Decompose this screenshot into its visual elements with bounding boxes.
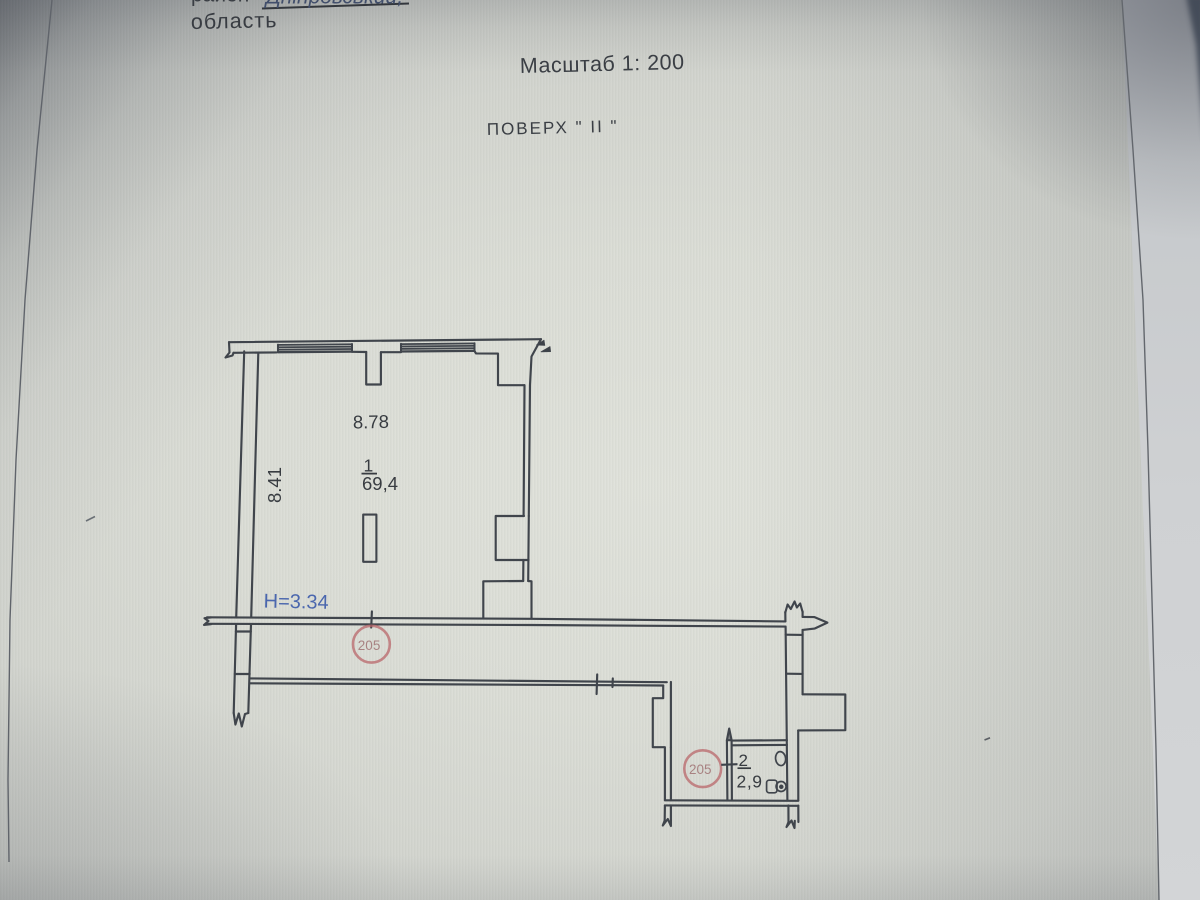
- svg-text:H=3.34: H=3.34: [263, 591, 329, 614]
- svg-text:69,4: 69,4: [362, 473, 398, 494]
- svg-text:Масштаб 1: 200: Масштаб 1: 200: [520, 50, 685, 78]
- svg-text:205: 205: [689, 762, 712, 777]
- svg-text:район: район: [191, 0, 249, 7]
- svg-text:ПОВЕРХ " ІІ ": ПОВЕРХ " ІІ ": [487, 117, 619, 139]
- svg-text:область: область: [191, 8, 278, 34]
- svg-text:2,9: 2,9: [737, 772, 763, 792]
- svg-text:205: 205: [358, 638, 381, 653]
- svg-text:2: 2: [739, 751, 748, 770]
- svg-text:Дніпровський,: Дніпровський,: [264, 0, 403, 9]
- svg-text:8.78: 8.78: [353, 411, 389, 433]
- svg-text:8.41: 8.41: [264, 467, 285, 503]
